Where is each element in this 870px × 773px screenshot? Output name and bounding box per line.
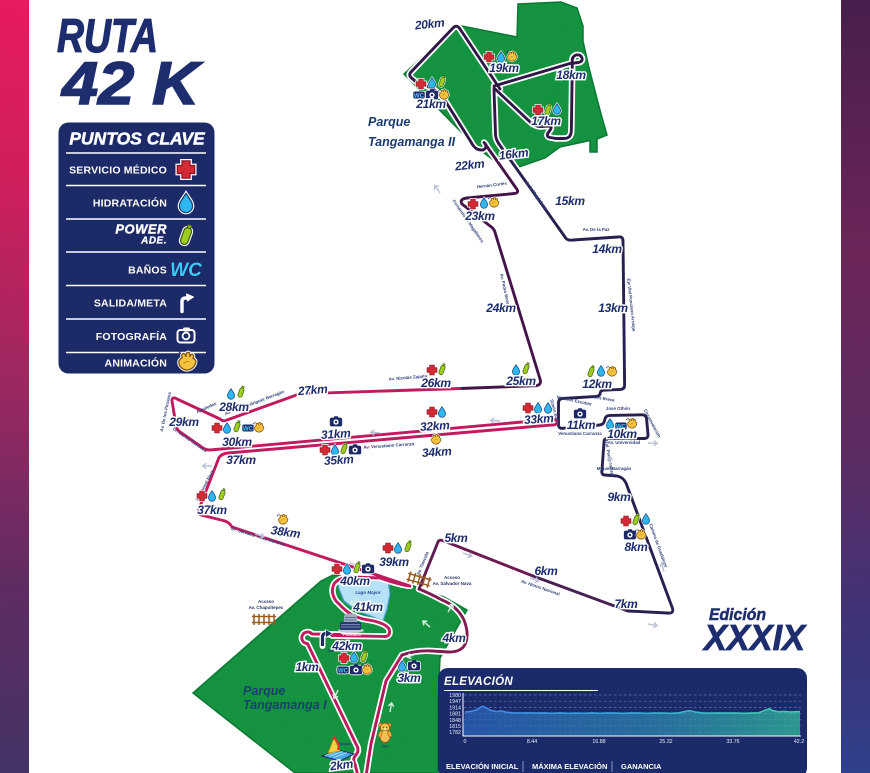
svg-text:37km: 37km bbox=[226, 453, 256, 467]
svg-text:33km: 33km bbox=[524, 411, 555, 427]
svg-text:1980: 1980 bbox=[449, 693, 461, 699]
svg-text:FOTOGRAFÍA: FOTOGRAFÍA bbox=[96, 330, 167, 343]
svg-text:42 K: 42 K bbox=[61, 50, 203, 117]
svg-text:8.44: 8.44 bbox=[527, 739, 537, 745]
svg-text:POWER: POWER bbox=[115, 222, 167, 237]
svg-text:1947: 1947 bbox=[449, 699, 461, 705]
svg-text:ANIMACIÓN: ANIMACIÓN bbox=[105, 357, 167, 370]
svg-text:15km: 15km bbox=[555, 194, 585, 208]
svg-text:1782: 1782 bbox=[449, 730, 461, 736]
svg-text:1815: 1815 bbox=[449, 724, 461, 730]
svg-text:SERVICIO MÉDICO: SERVICIO MÉDICO bbox=[69, 164, 167, 177]
svg-text:29km: 29km bbox=[168, 415, 199, 429]
svg-text:ELEVACIÓN: ELEVACIÓN bbox=[444, 675, 513, 688]
svg-text:GANANCIA: GANANCIA bbox=[621, 762, 662, 771]
svg-text:31km: 31km bbox=[321, 426, 352, 442]
svg-text:4km: 4km bbox=[441, 631, 466, 645]
svg-text:11km: 11km bbox=[567, 418, 596, 432]
svg-text:25.32: 25.32 bbox=[659, 739, 672, 745]
svg-text:Parque: Parque bbox=[368, 115, 410, 129]
svg-text:Lago Mayor: Lago Mayor bbox=[355, 590, 381, 595]
svg-text:40km: 40km bbox=[339, 574, 370, 588]
svg-text:Splash: Splash bbox=[339, 742, 351, 746]
svg-text:Acceso: Acceso bbox=[444, 575, 460, 580]
svg-text:34km: 34km bbox=[422, 444, 453, 460]
svg-text:21km: 21km bbox=[415, 97, 446, 111]
svg-text:5km: 5km bbox=[444, 531, 468, 545]
svg-text:Planetario: Planetario bbox=[343, 633, 361, 637]
svg-text:26km: 26km bbox=[420, 376, 451, 390]
svg-text:Tangamanga II: Tangamanga II bbox=[368, 135, 456, 149]
svg-text:32km: 32km bbox=[420, 418, 451, 434]
svg-text:Parque: Parque bbox=[243, 684, 285, 698]
svg-text:9km: 9km bbox=[607, 490, 631, 504]
svg-text:MÁXIMA ELEVACIÓN: MÁXIMA ELEVACIÓN bbox=[532, 762, 607, 771]
svg-text:1914: 1914 bbox=[449, 705, 461, 711]
svg-text:35km: 35km bbox=[324, 452, 355, 468]
svg-text:27km: 27km bbox=[296, 382, 328, 399]
svg-text:3km: 3km bbox=[397, 671, 421, 685]
svg-text:SALIDA/META: SALIDA/META bbox=[94, 298, 167, 310]
svg-text:18km: 18km bbox=[556, 68, 586, 82]
svg-text:24km: 24km bbox=[485, 301, 516, 315]
svg-text:42km: 42km bbox=[331, 639, 362, 653]
svg-text:16.88: 16.88 bbox=[592, 739, 605, 745]
svg-text:Av. Chapultepec: Av. Chapultepec bbox=[249, 605, 284, 610]
svg-text:30km: 30km bbox=[222, 435, 252, 449]
svg-text:23km: 23km bbox=[464, 209, 495, 223]
svg-text:1km: 1km bbox=[295, 660, 319, 674]
svg-text:BAÑOS: BAÑOS bbox=[128, 264, 167, 277]
svg-text:2km: 2km bbox=[328, 757, 354, 773]
svg-text:19km: 19km bbox=[489, 61, 519, 75]
svg-text:25km: 25km bbox=[505, 374, 536, 388]
svg-text:10km: 10km bbox=[607, 427, 637, 441]
svg-text:14km: 14km bbox=[592, 242, 622, 256]
svg-text:13km: 13km bbox=[598, 301, 628, 315]
svg-text:Zoo: Zoo bbox=[381, 744, 389, 749]
svg-text:HIDRATACIÓN: HIDRATACIÓN bbox=[93, 197, 167, 210]
svg-text:37km: 37km bbox=[197, 503, 227, 517]
svg-text:41km: 41km bbox=[352, 600, 383, 614]
svg-text:Acceso: Acceso bbox=[258, 599, 274, 604]
svg-text:José Othón: José Othón bbox=[606, 406, 630, 411]
svg-text:ELEVACIÓN INICIAL: ELEVACIÓN INICIAL bbox=[446, 762, 519, 771]
svg-text:ADE.: ADE. bbox=[140, 236, 167, 247]
svg-text:12km: 12km bbox=[582, 377, 612, 391]
svg-text:6km: 6km bbox=[534, 564, 558, 578]
svg-text:42.2: 42.2 bbox=[794, 739, 804, 745]
svg-text:Av. De la Paz: Av. De la Paz bbox=[583, 227, 611, 232]
svg-text:7km: 7km bbox=[614, 597, 638, 611]
svg-text:PUNTOS CLAVE: PUNTOS CLAVE bbox=[69, 129, 206, 149]
svg-text:39km: 39km bbox=[379, 555, 409, 569]
svg-text:0: 0 bbox=[464, 739, 467, 745]
svg-text:1881: 1881 bbox=[449, 712, 461, 718]
svg-text:Tangamanga I: Tangamanga I bbox=[243, 698, 327, 712]
svg-text:8km: 8km bbox=[624, 540, 648, 554]
svg-text:28km: 28km bbox=[218, 400, 249, 414]
svg-text:Av. Salvador Nava: Av. Salvador Nava bbox=[433, 581, 472, 586]
svg-text:1848: 1848 bbox=[449, 718, 461, 724]
svg-text:33.76: 33.76 bbox=[726, 739, 739, 745]
svg-text:17km: 17km bbox=[531, 114, 561, 128]
svg-text:XXXIX: XXXIX bbox=[702, 617, 807, 658]
svg-text:WC: WC bbox=[170, 260, 202, 281]
